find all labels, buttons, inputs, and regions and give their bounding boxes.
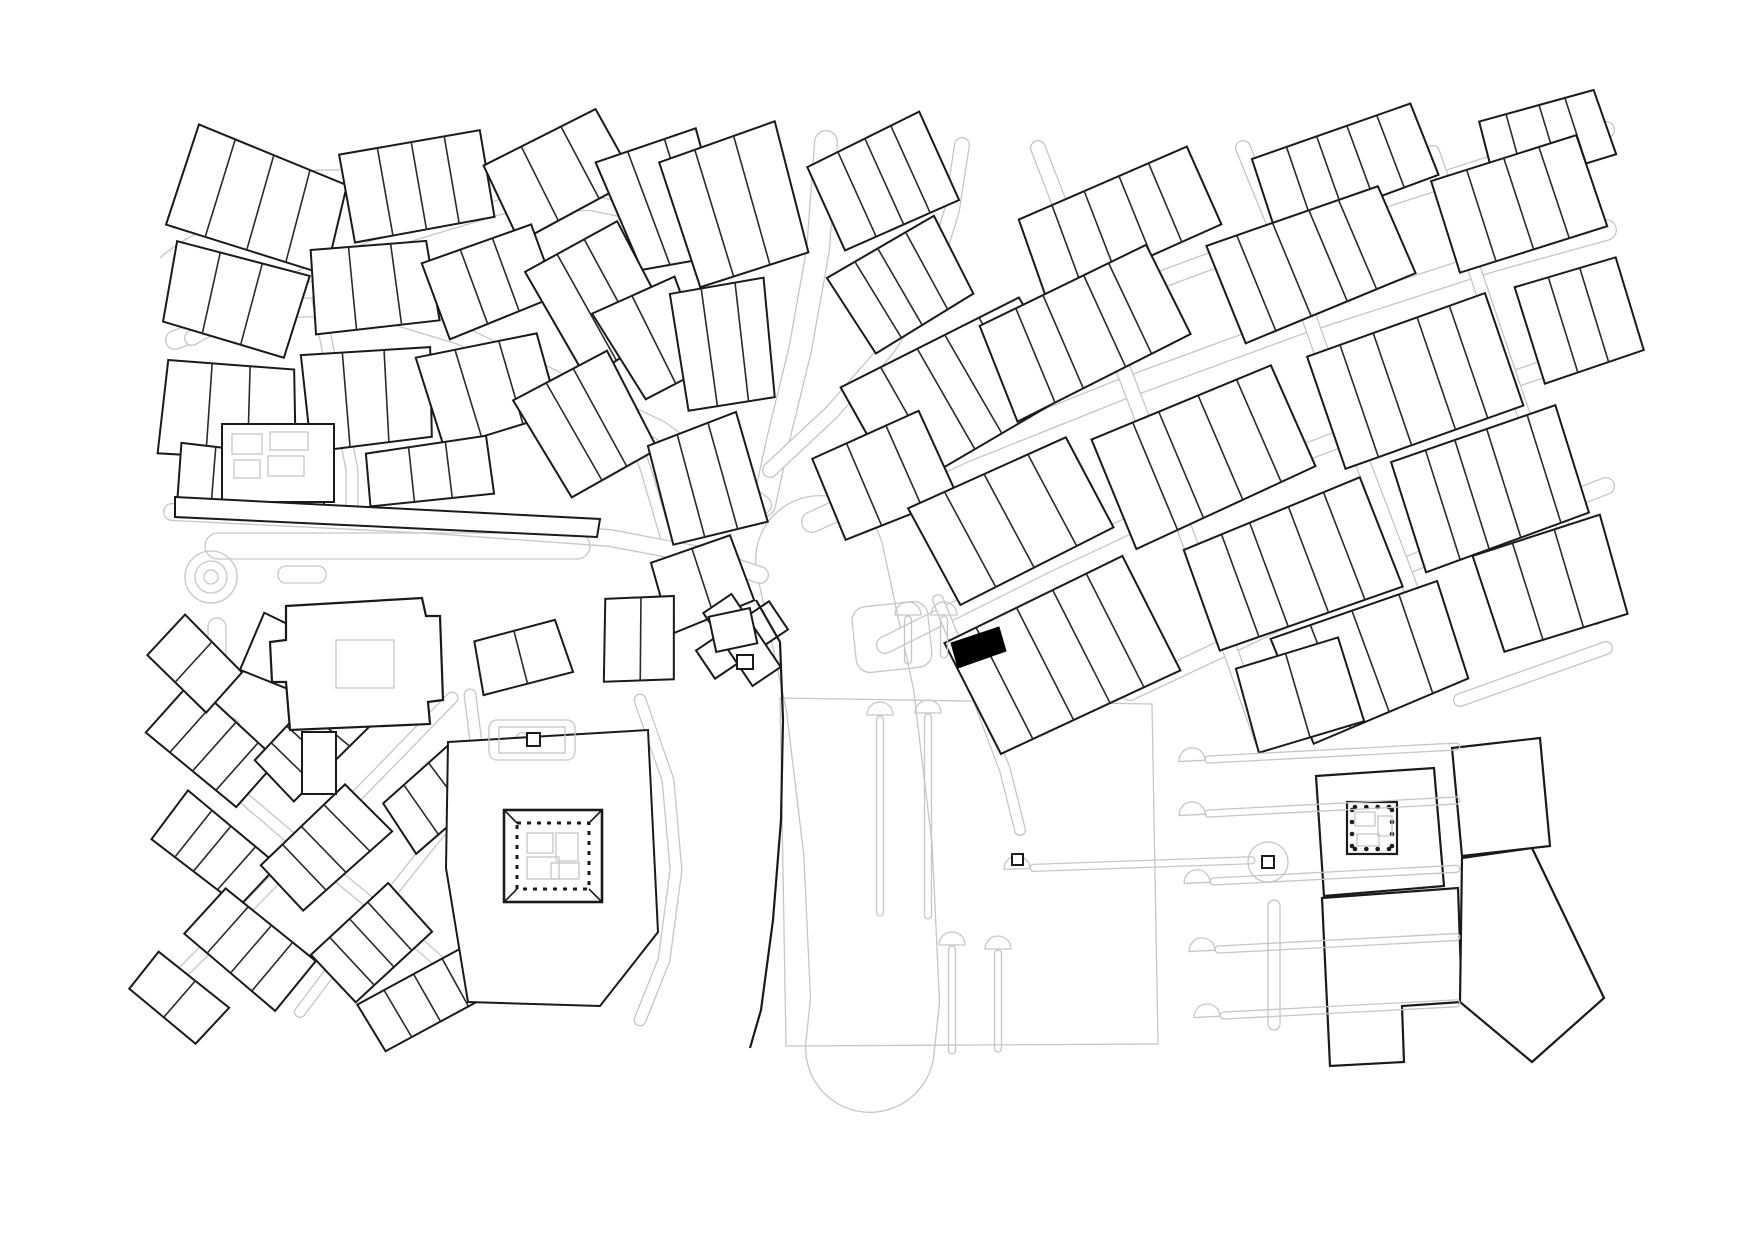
garden-plot [222,424,334,502]
city-block-outline [670,278,775,411]
cloister-column-dot [1375,847,1380,852]
parking-row-cap [1178,801,1205,815]
fountain [195,561,227,593]
parking-row-cap [1188,937,1215,951]
small-block-outline [474,620,573,695]
kiosk [1012,854,1023,865]
parking-row [1205,743,1460,763]
wall-hut [737,655,753,669]
institution-building [1460,848,1604,1062]
cloister-column-dot [1350,820,1355,825]
gate-annex [709,608,758,652]
city-block-outline [366,436,494,507]
city-block-outline [339,130,494,242]
boulevard [820,560,875,1048]
kiosk [1262,856,1274,868]
grid-street-far-south [1460,648,1606,700]
median-strip [1268,900,1280,1030]
small-block-outline [129,952,229,1044]
parking-row-cap [895,602,921,615]
parcel-line [640,597,641,680]
cloister-column-dot [1350,832,1355,837]
civic-building [270,598,443,730]
parking-row [1030,857,1255,872]
site-plan-map [0,0,1755,1240]
parking-row-cap [985,936,1011,949]
planter [278,566,326,583]
figure-ground-site-plan [0,0,1755,1240]
fountain [204,570,218,584]
institution-building [1322,888,1462,1066]
city-block-outline [311,241,440,335]
parking-row-cap [939,932,965,945]
cloister-column-dot [1350,844,1355,849]
parking-row [949,946,956,1054]
cloister-column-dot [1364,847,1369,852]
parking-row-cap [1193,1003,1220,1017]
parking-row-cap [915,700,941,713]
small-block-outline [261,784,392,910]
parking-row [995,950,1002,1052]
institution-building [1452,738,1550,856]
cloister-column-dot [1390,844,1395,849]
small-block-outline [147,615,242,713]
city-block-outline [604,596,674,682]
stair-wing [302,732,336,794]
monument [527,733,540,746]
fountain [185,551,237,603]
parking-row-cap [1178,747,1205,761]
parking-row-cap [1183,869,1210,883]
